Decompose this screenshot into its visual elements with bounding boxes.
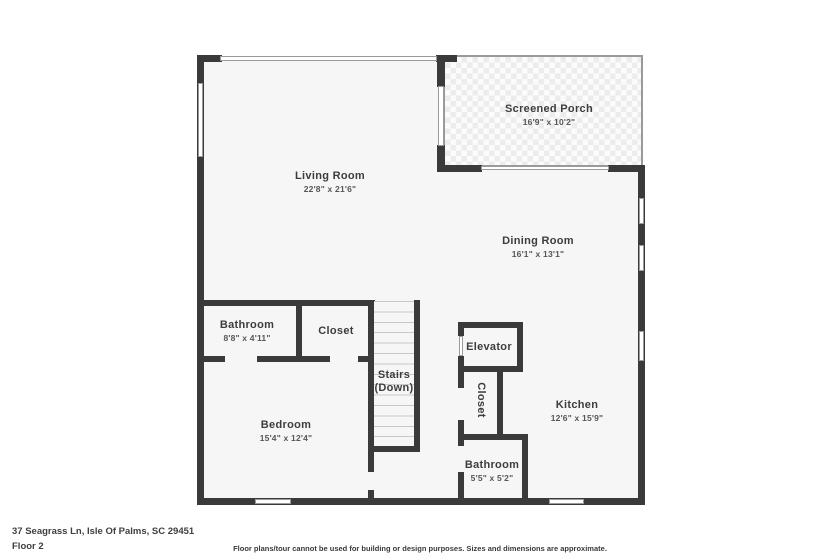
bathroom-upper-dims: 8'8" x 4'11" — [223, 333, 270, 343]
bedroom-label: Bedroom — [261, 419, 311, 431]
living-room-label: Living Room — [295, 170, 365, 182]
wall-bedroom-top-seg2 — [257, 356, 330, 362]
wall-stairs-right — [414, 300, 420, 452]
wall-top-left-segment — [197, 55, 222, 62]
living-room-dims: 22'8" x 21'6" — [304, 184, 357, 194]
wall-bath-closet-divider — [296, 300, 302, 362]
elevator-label: Elevator — [466, 341, 512, 353]
dining-room-dims: 16'1" x 13'1" — [512, 249, 565, 259]
screened-porch-label: Screened Porch — [505, 103, 593, 115]
window-right-3 — [639, 331, 644, 361]
bathroom-lower-label: Bathroom — [465, 459, 519, 471]
wall-porch-bottom-left — [437, 165, 482, 172]
wall-elevator-bottom — [458, 366, 523, 372]
wall-bedroom-top-seg1 — [197, 356, 225, 362]
window-bottom-bedroom — [255, 499, 291, 504]
kitchen-label: Kitchen — [556, 399, 598, 411]
wall-elevator-top — [458, 322, 523, 328]
wall-below-stairs-upper — [368, 452, 374, 472]
wall-stairs-bottom — [368, 446, 420, 452]
dining-kitchen-floor — [443, 167, 640, 499]
screened-porch-dims: 16'9" x 10'2" — [523, 117, 576, 127]
wall-closet-left-top-stub — [458, 366, 464, 388]
window-right-1 — [639, 198, 644, 224]
window-right-2 — [639, 245, 644, 271]
elevator-door — [459, 336, 463, 356]
wall-bathroom2-top — [458, 434, 528, 440]
wall-bathroom2-right — [522, 434, 528, 502]
wall-bathroom2-left-top-stub — [458, 434, 464, 446]
window-top-living — [220, 56, 437, 61]
wall-elevator-right — [517, 322, 523, 372]
window-left-living — [198, 83, 203, 157]
bathroom-lower-dims: 5'5" x 5'2" — [471, 473, 514, 483]
bedroom-dims: 15'4" x 12'4" — [260, 433, 313, 443]
closet-hall-label: Closet — [475, 382, 487, 417]
slider-porch-dining — [481, 166, 609, 170]
wall-living-porch-upper — [437, 55, 445, 87]
floor-number-label: Floor 2 — [12, 541, 44, 552]
window-bottom-kitchen — [549, 499, 584, 504]
wall-living-bath-divider — [197, 300, 375, 306]
stairs-down-label: (Down) — [374, 382, 413, 394]
closet-upper-label: Closet — [318, 325, 353, 337]
kitchen-dims: 12'6" x 15'9" — [551, 413, 604, 423]
dining-room-label: Dining Room — [502, 235, 574, 247]
property-address: 37 Seagrass Ln, Isle Of Palms, SC 29451 — [12, 526, 194, 537]
floor-plan-canvas: Living Room 22'8" x 21'6" Screened Porch… — [0, 0, 840, 560]
stairs-label: Stairs — [378, 369, 410, 381]
disclaimer-text: Floor plans/tour cannot be used for buil… — [233, 544, 607, 553]
window-living-porch — [438, 86, 444, 146]
wall-closet-right — [497, 366, 503, 440]
bathroom-upper-label: Bathroom — [220, 319, 274, 331]
wall-bathroom2-left-bottom-stub — [458, 472, 464, 502]
wall-below-stairs-lower — [368, 490, 374, 502]
wall-elevator-left-top-stub — [458, 322, 464, 336]
